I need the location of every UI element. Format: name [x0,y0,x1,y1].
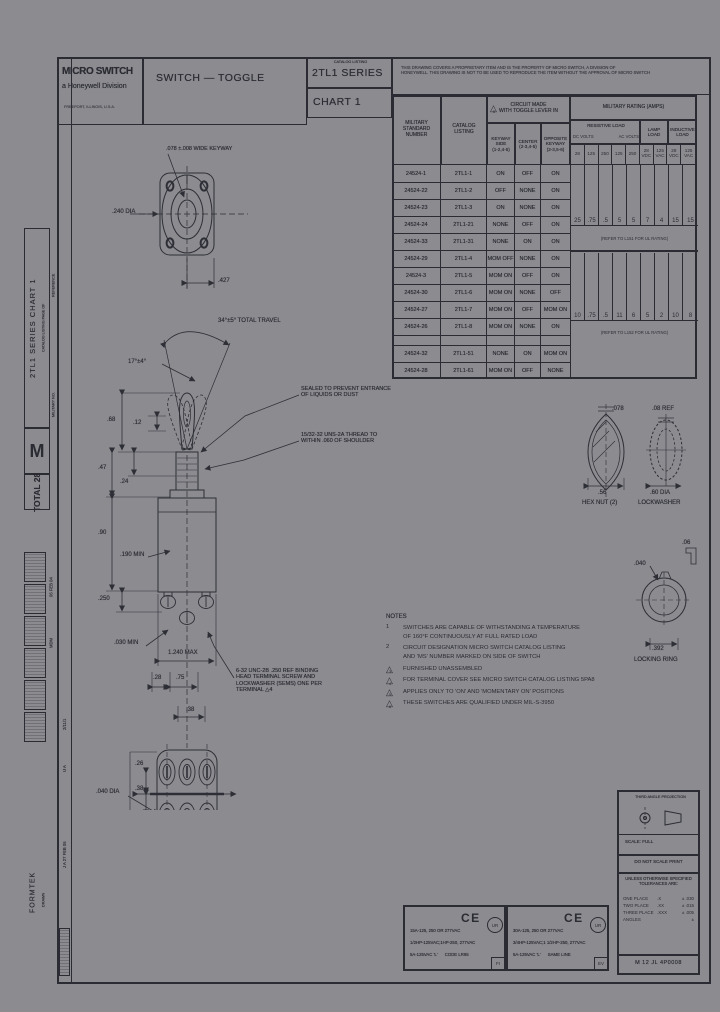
do-not-scale-label: DO NOT SCALE PRINT [619,859,698,864]
flag-triangle-icon: △6 [386,698,393,708]
divider [619,872,698,874]
dim-040-dia: .040 DIA [96,789,119,796]
dim-68: .68 [107,417,115,424]
stamp-rating-line: 3/4HP-125VAC;1 1/2HP-250, 277VAC [513,940,585,945]
mounting-width-label: .427 [218,278,230,285]
sidebar-stamp-box [24,616,46,646]
logo-box: MICRO SWITCH a Honeywell Division FREEPO… [57,57,143,125]
document-number: M 12 JL 4P0008 [619,960,698,966]
panel-front-view [130,154,248,292]
dim-38: .38 [186,707,194,714]
title-block: THIRD ANGLE PROJECTION SCALE: FULL DO NO… [617,790,700,975]
tolerance-cell: .XX [657,903,674,908]
sidebar-stamp-date: 06 FEB 04 [46,560,56,615]
dim-47: .47 [98,465,106,472]
brand-logo: MICRO SWITCH [62,66,133,78]
tolerance-cell: .X [657,896,674,901]
dim-030-min: .030 MIN [114,640,138,647]
revision-entry-2: 2/11/1 [59,700,70,748]
note-item: △6THESE SWITCHES ARE QUALIFIED UNDER MIL… [386,699,626,708]
locking-ring-040: .040 [634,561,646,568]
stamp-rating-line: 5A-125VAC 'L' SAME LINE [513,952,571,957]
tolerance-title: UNLESS OTHERWISE SPECIFIED TOLERANCES AR… [619,877,698,887]
tolerance-cell: ± [674,917,694,922]
dim-12: .12 [133,420,141,427]
flag-triangle-icon: △3 [386,664,393,674]
tolerance-cell: ANGLES [623,917,657,922]
lockwasher-ref: .08 REF [652,406,674,413]
drawn-label: DRAWN [40,880,47,920]
dim-190-min: .190 MIN [120,552,144,559]
note-marker: △3 [386,665,399,674]
note-marker: △4 [386,676,399,685]
chart-box: CHART 1 [307,88,392,118]
sidebar-stamp-box [24,712,46,742]
hex-nut-thickness: .078 [612,406,624,413]
half-travel-label: 17°±4° [128,359,146,366]
sidebar-m-box: M [24,428,50,474]
flag-note-number: 5 [493,107,495,116]
tolerance-row: THREE PLACE.XXX± .005 [619,908,698,915]
terminal-bottom-view [128,744,236,810]
sidebar-m-letter: M [30,441,45,462]
stamp-rating-line: 5A-125VAC 'L' CODE LR95 [410,952,469,957]
proprietary-notice: THIS DRAWING COVERS A PROPRIETARY ITEM A… [401,66,701,76]
file-mark-icon: FI [491,957,505,970]
hex-nut-width: .56 [598,490,606,497]
sidebar-series-title: 2TL1 SERIES CHART 1 [26,231,39,425]
total-travel-label: 34°±5° TOTAL TRAVEL [218,318,281,325]
note-marker: 2 [386,644,399,662]
rating-stamp-left: CE UR 15A-125, 250 OR 277VAC 1/2HP-125VA… [403,905,506,971]
dim-28: .28 [153,675,161,682]
brand-sub: a Honeywell Division [62,83,127,91]
sidebar-total-value: TOTAL 28 [27,476,47,508]
sidebar-title-box: 2TL1 SERIES CHART 1 CATALOG LISTING PAGE… [24,228,50,428]
stamp-rating-line: 30A-125, 250 OR 277VAC [513,928,563,933]
note-marker: △6 [386,699,399,708]
tolerance-row: ONE PLACE.X± .030 [619,894,698,901]
catalog-listing-label: CATALOG LISTING [308,60,393,64]
circuit-made-header-text: CIRCUIT MADE WITH TOGGLE LEVER IN [499,103,558,115]
stamp-rating-line: 1/2HP-125VAC;1HP-250, 277VAC [410,940,475,945]
note-marker: △5 [386,688,399,697]
divider [619,954,698,956]
sidebar-stamp-box [24,648,46,678]
formtek-label: FORMTEK [26,856,40,928]
tolerance-cell: .XXX [657,910,674,915]
note-item: 2CIRCUIT DESIGNATION MICRO SWITCH CATALO… [386,644,626,662]
third-angle-projection-icon [635,805,685,831]
dim-26-terminal: .26 [135,761,143,768]
ce-mark-icon: CE [461,911,481,925]
lockwasher-label: LOCKWASHER [638,500,680,507]
hex-nut-view [588,404,624,500]
tolerance-row: ANGLES± [619,915,698,922]
divider [619,854,698,856]
dim-38-terminal: .38 [135,786,143,793]
note-item: 1SWITCHES ARE CAPABLE OF WITHSTANDING A … [386,624,626,642]
note-item: △3FURNISHED UNASSEMBLED [386,665,626,674]
locking-ring-06: .06 [682,540,690,547]
ratings-title-text: MILITARY RATING (AMPS) [603,105,664,111]
notes-list: 1SWITCHES ARE CAPABLE OF WITHSTANDING A … [386,624,626,708]
tolerance-cell: ± .005 [674,910,694,915]
brand-address: FREEPORT, ILLINOIS, U.S.A. [64,105,115,109]
sidebar-stamp-box [24,552,46,582]
seal-note: SEALED TO PREVENT ENTRANCE OF LIQUIDS OR… [301,386,391,399]
series-title: 2TL1 SERIES [312,67,383,79]
ul-recognized-icon: UR [487,917,503,933]
file-mark-icon: EV [594,957,608,970]
sidebar-total-box: TOTAL 28 [24,474,50,510]
sidebar-stamp-box [24,680,46,710]
terminal-screw-note: 6-32 UNC-2B .250 REF BINDING HEAD TERMIN… [236,668,346,694]
tolerance-cell: ONE PLACE [623,896,657,901]
note-text: FOR TERMINAL COVER SEE MICRO SWITCH CATA… [403,676,595,685]
engineering-drawing-sheet: MICRO SWITCH a Honeywell Division FREEPO… [0,0,720,1012]
ce-mark-icon: CE [564,911,584,925]
flag-note-icon: △5 [490,104,497,113]
hex-nut-label: HEX NUT (2) [582,500,617,507]
note-item: △5APPLIES ONLY TO 'ON' AND 'MOMENTARY ON… [386,688,626,697]
series-box: CATALOG LISTING 2TL1 SERIES [307,57,392,88]
sidebar-stamp-initials: MDM [46,625,56,660]
tolerance-rows: ONE PLACE.X± .030TWO PLACE.XX± .015THREE… [619,894,698,922]
dim-1240-max: 1.240 MAX [168,650,198,657]
note-text: SWITCHES ARE CAPABLE OF WITHSTANDING A T… [403,624,580,642]
revision-entry-3: U A [59,755,70,783]
dim-24: .24 [120,479,128,486]
notes-title: NOTES [386,614,626,620]
lockwasher-dia: .60 DIA [650,490,670,497]
flag-triangle-icon: △4 [386,675,393,685]
sidebar-reference-label: REFERENCE [50,240,57,330]
divider [619,834,698,835]
notes-block: NOTES 1SWITCHES ARE CAPABLE OF WITHSTAND… [386,614,626,711]
note-text: CIRCUIT DESIGNATION MICRO SWITCH CATALOG… [403,644,566,662]
note-marker: 1 [386,624,399,642]
title-box: SWITCH — TOGGLE [143,57,307,125]
tolerance-row: TWO PLACE.XX± .015 [619,901,698,908]
tolerance-cell [657,917,674,922]
dim-75: .75 [176,675,184,682]
note-text: APPLIES ONLY TO 'ON' AND 'MOMENTARY ON' … [403,688,564,697]
ul-recognized-icon: UR [590,917,606,933]
locking-ring-392: .392 [652,646,664,653]
proprietary-box: THIS DRAWING COVERS A PROPRIETARY ITEM A… [392,57,711,95]
bushing-dia-label: .240 DIA [112,209,135,216]
chart-title: CHART 1 [313,96,361,108]
dim-90: .90 [98,530,106,537]
sidebar-catalog-listing-label: CATALOG LISTING PAGE OF [39,231,48,425]
note-text: THESE SWITCHES ARE QUALIFIED UNDER MIL-S… [403,699,554,708]
note-text: FURNISHED UNASSEMBLED [403,665,482,674]
scale-label: SCALE: FULL [625,839,653,844]
tolerance-cell: ± .030 [674,896,694,901]
note-item: △4FOR TERMINAL COVER SEE MICRO SWITCH CA… [386,676,626,685]
page-title: SWITCH — TOGGLE [156,72,265,84]
ratings-title-cell: MILITARY RATING (AMPS) [570,95,697,120]
revision-entry-1: J A 27 FEB 06 [59,800,70,910]
flag-triangle-icon: △5 [386,687,393,697]
tolerance-cell: TWO PLACE [623,903,657,908]
revision-stamp-box [59,928,70,976]
locking-ring-label: LOCKING RING [634,657,678,664]
tolerance-cell: THREE PLACE [623,910,657,915]
projection-label: THIRD ANGLE PROJECTION [619,795,702,799]
sidebar-stamp-box [24,584,46,614]
sidebar-military-no-label: MILITARY NO. [50,350,57,460]
rating-stamp-right: CE UR 30A-125, 250 OR 277VAC 3/4HP-125VA… [506,905,609,971]
sidebar-stamp-column [24,552,46,744]
thread-note: 15/32-32 UNS-2A THREAD TO WITHIN .060 OF… [301,432,377,445]
dim-250: .250 [98,596,110,603]
keyway-dim-label: .078 ±.008 WIDE KEYWAY [166,146,232,152]
tolerance-cell: ± .015 [674,903,694,908]
lockwasher-view [646,414,686,486]
stamp-rating-line: 15A-125, 250 OR 277VAC [410,928,460,933]
